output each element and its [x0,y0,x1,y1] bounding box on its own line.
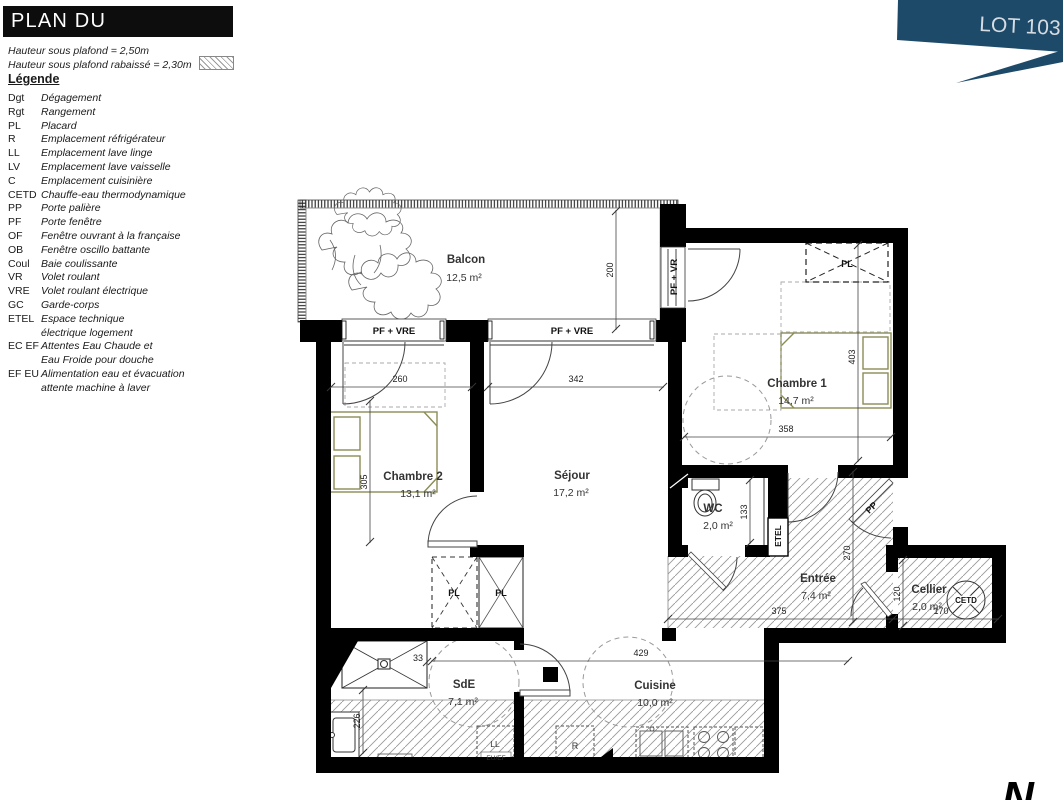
room-area-cellier: 2,0 m² [912,601,942,613]
window-label: PF + VRE [551,326,594,337]
room-area-entree: 7,4 m² [801,590,831,602]
room-area-chambre2: 13,1 m² [400,488,436,500]
door-balcon-chambre1 [688,249,740,301]
room-label-wc: WC [703,503,722,515]
room-label-cuisine: Cuisine [634,680,676,692]
room-label-sejour: Séjour [554,470,590,482]
lot-number: LOT 103 [979,13,1061,40]
room-label-entree: Entrée [800,573,836,585]
lot-banner: LOT 103 [897,0,1063,83]
dim-entree-width: 375 [771,606,786,616]
shower [342,641,427,688]
pl-label-right: PL [495,588,507,598]
dim-chambre2-depth: 305 [359,474,369,489]
etel-cabinet: ETEL [768,518,788,556]
r-label: R [572,741,579,751]
dim-shower-width: 33 [413,653,423,663]
room-label-sde: SdE [453,679,476,691]
floor-plan-drawing: LOT 103 [0,0,1063,800]
pl-label-left: PL [448,588,460,598]
door-window-sejour [490,342,552,404]
windows: PF + VRE PF + VRE PF + VR [342,247,685,345]
window-pf-vre-left: PF + VRE [342,319,446,345]
dim-chambre2-window: 260 [392,374,407,384]
room-area-chambre1: 14,7 m² [778,395,814,407]
etel-label: ETEL [773,525,783,547]
lot-banner-ribbon-fold [956,50,1063,83]
eu-ef-label: EU/EF [486,755,505,762]
pl-label-chambre1: PL [841,259,853,269]
window-pf-vre-right: PF + VRE [488,319,656,345]
window-pf-vr: PF + VR [661,247,685,308]
balcony [298,188,678,322]
room-area-sde: 7,1 m² [448,696,478,708]
room-label-balcon: Balcon [447,254,485,266]
dim-wc-depth: 133 [739,504,749,519]
door-chambre2 [428,496,477,547]
north-arrow: N [1002,773,1035,800]
dim-balcon-depth: 200 [605,262,615,277]
door-window-chambre2 [343,342,405,404]
dim-chambre1-depth: 403 [847,349,857,364]
ll-label: LL [490,739,500,749]
balcony-railing-left [298,200,306,322]
dim-sde-depth: 226 [352,713,362,728]
floor-plan-page: PLAN DU LOGEMENT Hauteur sous plafond = … [0,0,1063,800]
dim-chambre1-width: 358 [778,424,793,434]
dim-entree-depth: 270 [842,545,852,560]
dim-cuisine-width: 429 [633,648,648,658]
balcony-railing-top [300,200,678,208]
room-label-cellier: Cellier [911,584,947,596]
room-label-chambre1: Chambre 1 [767,378,827,390]
room-label-chambre2: Chambre 2 [383,471,442,483]
dim-sejour-window: 342 [568,374,583,384]
room-area-wc: 2,0 m² [703,520,733,532]
window-label: PF + VRE [373,326,416,337]
room-area-cuisine: 10,0 m² [637,697,673,709]
dim-cellier-depth: 120 [892,586,902,601]
room-area-sejour: 17,2 m² [553,487,589,499]
room-area-balcon: 12,5 m² [446,272,482,284]
cetd-label: CETD [955,596,977,605]
window-label: PF + VR [669,259,680,295]
